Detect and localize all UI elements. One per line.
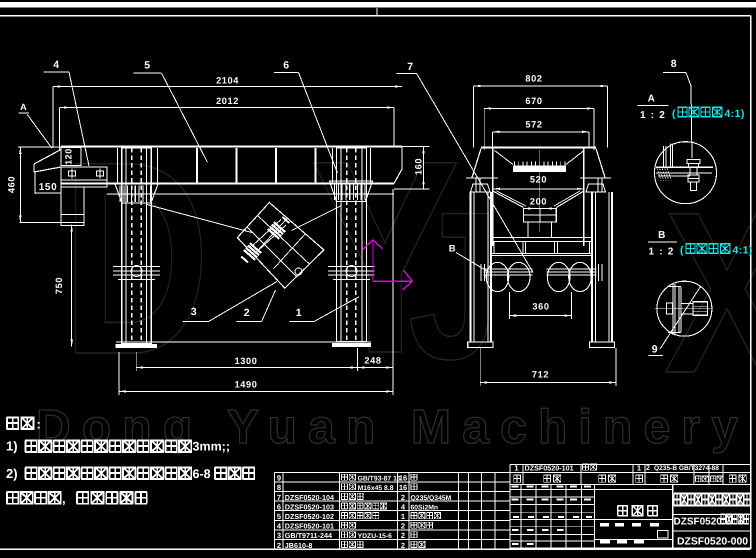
svg-text:5: 5 xyxy=(277,512,281,521)
svg-text:150: 150 xyxy=(39,182,58,193)
svg-text:DZSF0520-104: DZSF0520-104 xyxy=(285,493,334,502)
svg-text:2: 2 xyxy=(401,531,405,540)
svg-text:3: 3 xyxy=(191,306,197,318)
svg-text:6: 6 xyxy=(283,60,289,72)
svg-text:60Si2Mn: 60Si2Mn xyxy=(411,504,439,511)
svg-text:16: 16 xyxy=(399,474,407,483)
svg-text:3mm;;: 3mm;; xyxy=(193,440,231,454)
svg-text:572: 572 xyxy=(525,120,542,130)
svg-text:7: 7 xyxy=(407,61,413,73)
svg-text:16: 16 xyxy=(399,483,407,492)
svg-text:1490: 1490 xyxy=(235,380,258,390)
svg-text:1): 1) xyxy=(6,439,18,454)
svg-text:(: ( xyxy=(672,108,676,120)
svg-text:6-8: 6-8 xyxy=(193,467,211,481)
svg-text:4:1): 4:1) xyxy=(733,245,753,257)
svg-text:360: 360 xyxy=(532,302,549,312)
svg-text:B: B xyxy=(658,230,666,241)
svg-text:DZSF0520-101: DZSF0520-101 xyxy=(525,464,574,473)
svg-text:1: 1 xyxy=(296,307,302,319)
svg-text:1: 1 xyxy=(637,464,641,473)
svg-text:A: A xyxy=(648,94,656,105)
svg-text:7: 7 xyxy=(277,493,281,502)
svg-text:2): 2) xyxy=(6,466,18,481)
svg-text:DZSF0520-103: DZSF0520-103 xyxy=(285,502,334,511)
svg-text:750: 750 xyxy=(54,277,64,294)
svg-text:2104: 2104 xyxy=(216,76,239,86)
svg-text:1300: 1300 xyxy=(235,356,258,366)
svg-text:2: 2 xyxy=(401,541,405,550)
svg-text:8: 8 xyxy=(671,58,677,70)
svg-text:460: 460 xyxy=(7,176,17,193)
svg-text:9: 9 xyxy=(277,474,281,483)
svg-text:,: , xyxy=(62,491,66,506)
svg-text:YDZU-15-6: YDZU-15-6 xyxy=(358,533,393,540)
svg-text:DZSF0520-102: DZSF0520-102 xyxy=(285,512,334,521)
svg-text:8: 8 xyxy=(277,483,281,492)
svg-text:160: 160 xyxy=(414,158,424,175)
svg-text:520: 520 xyxy=(530,175,547,185)
svg-text:1 : 2: 1 : 2 xyxy=(649,247,675,258)
svg-text:4:1): 4:1) xyxy=(725,108,745,120)
svg-text:712: 712 xyxy=(532,370,549,380)
svg-text:2: 2 xyxy=(244,307,250,319)
svg-text:1: 1 xyxy=(514,464,518,473)
svg-text:(: ( xyxy=(680,245,684,257)
svg-text:DZSF0520-000: DZSF0520-000 xyxy=(677,537,748,548)
svg-text:DZSF0520: DZSF0520 xyxy=(674,517,723,528)
svg-text:DZSF0520-101: DZSF0520-101 xyxy=(285,522,334,531)
svg-text:2: 2 xyxy=(401,522,405,531)
svg-text:5: 5 xyxy=(144,60,150,72)
svg-text:802: 802 xyxy=(525,74,542,84)
svg-text:670: 670 xyxy=(525,96,542,106)
svg-text::: : xyxy=(37,417,42,432)
svg-text:Q235/Q345M: Q235/Q345M xyxy=(411,495,452,502)
svg-text:2: 2 xyxy=(401,493,405,502)
svg-text:M16x45 8.8: M16x45 8.8 xyxy=(358,485,394,492)
svg-text:3: 3 xyxy=(277,531,281,540)
svg-text:B: B xyxy=(449,244,456,255)
svg-text:200: 200 xyxy=(530,197,547,207)
svg-text:1 : 2: 1 : 2 xyxy=(640,110,666,121)
svg-text:2: 2 xyxy=(277,541,281,550)
svg-text:1: 1 xyxy=(401,512,405,521)
svg-text:2012: 2012 xyxy=(216,96,239,106)
svg-text:J: J xyxy=(408,168,500,403)
svg-text:9: 9 xyxy=(652,344,658,356)
svg-text:JB610-8: JB610-8 xyxy=(285,541,313,550)
svg-text:120: 120 xyxy=(64,148,74,165)
svg-text:248: 248 xyxy=(364,356,381,366)
svg-text:GB/T9711-244: GB/T9711-244 xyxy=(285,531,332,540)
svg-text:A: A xyxy=(20,102,27,112)
svg-text:4: 4 xyxy=(53,59,59,71)
svg-text:6: 6 xyxy=(277,502,281,511)
svg-text:GB/T93-87 16: GB/T93-87 16 xyxy=(358,476,401,483)
svg-text:2: 2 xyxy=(646,465,650,472)
